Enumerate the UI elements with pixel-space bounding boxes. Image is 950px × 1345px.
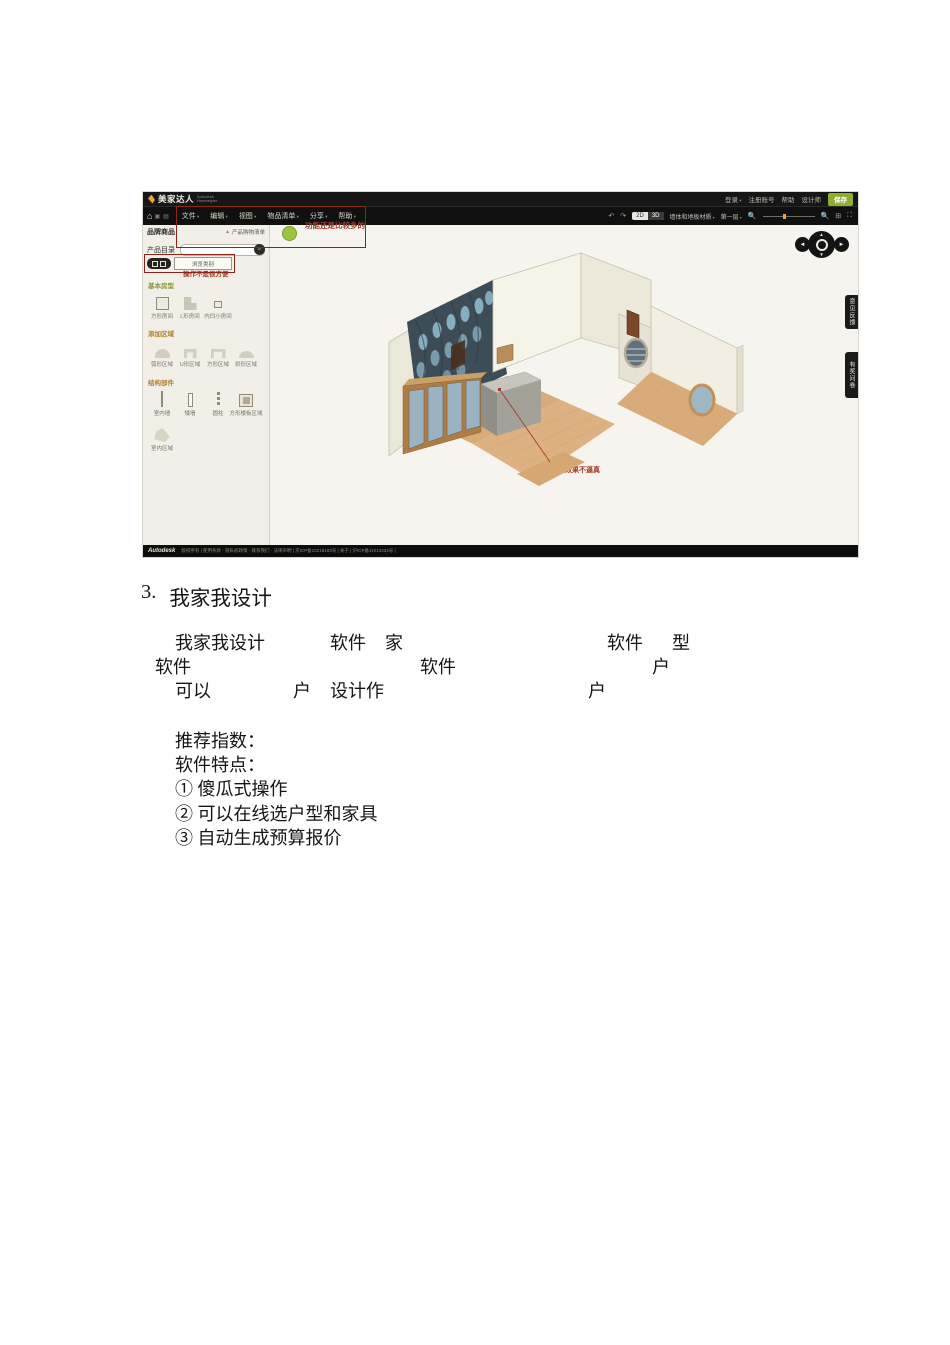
toggle-2d[interactable]: 2D xyxy=(632,212,648,220)
search-icon[interactable]: ⌕ xyxy=(254,244,265,255)
pan-up-icon[interactable]: ▲ xyxy=(808,232,835,237)
view-switch-button[interactable] xyxy=(147,258,171,269)
catalog-item-l-room[interactable]: L形房间 xyxy=(176,293,204,320)
open-file-icon[interactable]: ▤ xyxy=(163,213,169,220)
zoom-in-icon[interactable]: 🔍 xyxy=(821,212,830,220)
annotation-features: 功能还是比较多的 xyxy=(305,220,365,231)
door[interactable] xyxy=(627,310,639,338)
list-line-2: ② 可以在线选户型和家具 xyxy=(175,802,378,826)
toggle-3d[interactable]: 3D xyxy=(648,212,664,220)
app-logo-icon xyxy=(148,195,155,204)
para-fragment: 户 xyxy=(652,653,670,679)
para-fragment: 家 xyxy=(385,629,403,655)
para-fragment: 型 xyxy=(672,629,690,655)
right-room-end-wall[interactable] xyxy=(737,345,743,414)
section-basic-rooms: 基本房型 方形房间 L形房间 内凹小房间 xyxy=(148,280,266,320)
para-fragment: 软件 xyxy=(607,629,643,655)
save-button[interactable]: 保存 xyxy=(828,193,853,206)
help-link[interactable]: 帮助 xyxy=(782,194,795,204)
redo-icon[interactable]: ↷ xyxy=(620,212,626,220)
heading-title: 我家我设计 xyxy=(169,581,272,611)
para-fragment: 设计作 xyxy=(330,677,384,703)
menu-edit[interactable]: 编辑 xyxy=(210,211,228,221)
catalog-item-arc-region[interactable]: 弧形区域 xyxy=(148,341,176,368)
para-fragment: 软件 xyxy=(155,653,191,679)
floor-region-icon xyxy=(239,394,253,407)
round-mirror-hall[interactable] xyxy=(625,339,647,367)
tip-badge-icon[interactable] xyxy=(282,226,297,241)
designer-link[interactable]: 设计师 xyxy=(802,194,822,204)
round-mirror-right-room[interactable] xyxy=(690,385,714,415)
para-fragment: 户 xyxy=(293,677,311,703)
column-icon xyxy=(217,392,220,407)
orbit-control[interactable]: ▲ ▼ xyxy=(808,231,835,258)
feedback-side-tab[interactable]: 意见反馈 xyxy=(845,295,858,329)
catalog-item-small-room[interactable]: 内凹小房间 xyxy=(204,293,232,320)
section-title: 结构部件 xyxy=(148,377,266,387)
undo-icon[interactable]: ↶ xyxy=(608,212,614,220)
list-line-3: ③ 自动生成预算报价 xyxy=(175,826,378,850)
brand-products-label[interactable]: 品牌商品 xyxy=(147,227,175,237)
section-structure-parts: 结构部件 室内墙 矮墙 圆柱 xyxy=(148,377,266,452)
catalog-item-u-region[interactable]: U形区域 xyxy=(176,341,204,368)
square-room-icon xyxy=(156,297,169,310)
shopping-list-button[interactable]: ▲ 产品购物清单 xyxy=(225,228,265,236)
catalog-item-low-wall[interactable]: 矮墙 xyxy=(176,390,204,417)
list-view-icon xyxy=(160,261,166,267)
para-fragment: 软件 xyxy=(330,629,366,655)
survey-side-tab[interactable]: 有奖问卷 xyxy=(845,352,858,398)
interior-wall-icon xyxy=(161,391,164,407)
catalog-item-square-region[interactable]: 方形区域 xyxy=(204,341,232,368)
list-line-features: 软件特点： xyxy=(175,753,378,777)
register-link[interactable]: 注册账号 xyxy=(749,194,775,204)
arc-region-icon xyxy=(155,349,170,358)
heading-number: 3. xyxy=(141,581,156,611)
app-logo-text: 美家达人 xyxy=(158,193,194,205)
orbit-ring-icon xyxy=(816,239,828,251)
section-title: 添加区域 xyxy=(148,328,266,338)
fullscreen-icon[interactable]: ⛶ xyxy=(847,212,852,220)
search-input[interactable]: ⌕ xyxy=(180,244,265,256)
catalog-item-dome-region[interactable]: 拱形区域 xyxy=(232,341,260,368)
para-fragment: 可以 xyxy=(175,677,211,703)
new-file-icon[interactable]: ▣ xyxy=(154,213,160,220)
menu-file[interactable]: 文件 xyxy=(182,211,200,221)
section-title: 基本房型 xyxy=(148,280,266,290)
zoom-out-icon[interactable]: 🔍 xyxy=(748,212,757,220)
section-add-regions: 添加区域 弧形区域 U形区域 方形区域 xyxy=(148,328,266,368)
catalog-item-interior-region[interactable]: 室内区域 xyxy=(148,425,176,452)
upload-icon: ▲ xyxy=(225,229,230,235)
app-footer: Autodesk 版权所有 | 使用条款 · 隐私权政策 · 联系我们 · 法律… xyxy=(143,545,858,557)
para-fragment: 软件 xyxy=(420,653,456,679)
catalog-panel: 品牌商品 ▲ 产品购物清单 产品目录 ⌕ 浏览类别 操作不是很方便 基本房型 xyxy=(143,225,270,545)
pan-down-icon[interactable]: ▼ xyxy=(808,252,835,257)
zoom-slider[interactable] xyxy=(763,216,815,217)
catalog-item-square-room[interactable]: 方形房间 xyxy=(148,293,176,320)
pan-compass-widget[interactable]: ◄ ► ▲ ▼ xyxy=(795,226,849,264)
homestyler-app-screenshot: 美家达人 Autodesk Homestyler 登录 注册账号 帮助 设计师 … xyxy=(143,192,858,557)
small-room-icon xyxy=(214,301,222,308)
square-region-icon xyxy=(211,349,226,358)
u-region-icon xyxy=(184,349,197,358)
para-fragment: 我家我设计 xyxy=(175,629,265,655)
design-canvas-3d-view[interactable] xyxy=(385,250,745,500)
pan-right-icon[interactable]: ► xyxy=(834,237,849,252)
view-mode-toggle[interactable]: 2D 3D xyxy=(632,212,663,220)
feature-list: 推荐指数： 软件特点： ① 傻瓜式操作 ② 可以在线选户型和家具 ③ 自动生成预… xyxy=(175,729,378,850)
footer-legal-text: 版权所有 | 使用条款 · 隐私权政策 · 联系我们 · 法律声明 | 京ICP… xyxy=(181,548,395,554)
menu-item-list[interactable]: 物品清单 xyxy=(267,211,299,221)
catalog-item-floor-region[interactable]: 方形楼板区域 xyxy=(232,390,260,417)
dome-region-icon xyxy=(239,351,254,358)
document-page: 美家达人 Autodesk Homestyler 登录 注册账号 帮助 设计师 … xyxy=(0,0,950,1345)
zoom-slider-knob[interactable] xyxy=(783,214,786,219)
menu-view[interactable]: 视图 xyxy=(239,211,257,221)
login-link[interactable]: 登录 xyxy=(725,194,742,204)
product-catalog-label: 产品目录 xyxy=(147,245,175,255)
para-fragment: 户 xyxy=(588,677,606,703)
interior-region-icon xyxy=(154,428,170,442)
catalog-item-interior-wall[interactable]: 室内墙 xyxy=(148,390,176,417)
catalog-item-column[interactable]: 圆柱 xyxy=(204,390,232,417)
home-icon[interactable]: ⌂ xyxy=(147,211,152,221)
grid-icon[interactable]: ⊞ xyxy=(835,212,841,220)
low-wall-icon xyxy=(188,393,193,407)
floor-dropdown[interactable]: 第一层 xyxy=(721,212,742,221)
annotation-operation: 操作不是很方便 xyxy=(183,268,229,278)
materials-dropdown[interactable]: 墙体和地板材质 xyxy=(670,212,715,221)
list-line-rating: 推荐指数： xyxy=(175,729,378,753)
section-heading: 3. 我家我设计 xyxy=(141,581,272,611)
list-line-1: ① 傻瓜式操作 xyxy=(175,777,378,801)
app-title-bar: 美家达人 Autodesk Homestyler 登录 注册账号 帮助 设计师 … xyxy=(143,192,858,207)
app-menu-bar: ⌂ ▣ ▤ 文件 编辑 视图 物品清单 分享 帮助 ↶ ↷ 2D 3D 墙体和地… xyxy=(143,207,858,225)
l-shape-room-icon xyxy=(184,297,197,310)
grid-view-icon xyxy=(152,261,158,267)
app-logo-subtext: Autodesk Homestyler xyxy=(197,195,217,204)
autodesk-logo: Autodesk xyxy=(148,548,175,554)
